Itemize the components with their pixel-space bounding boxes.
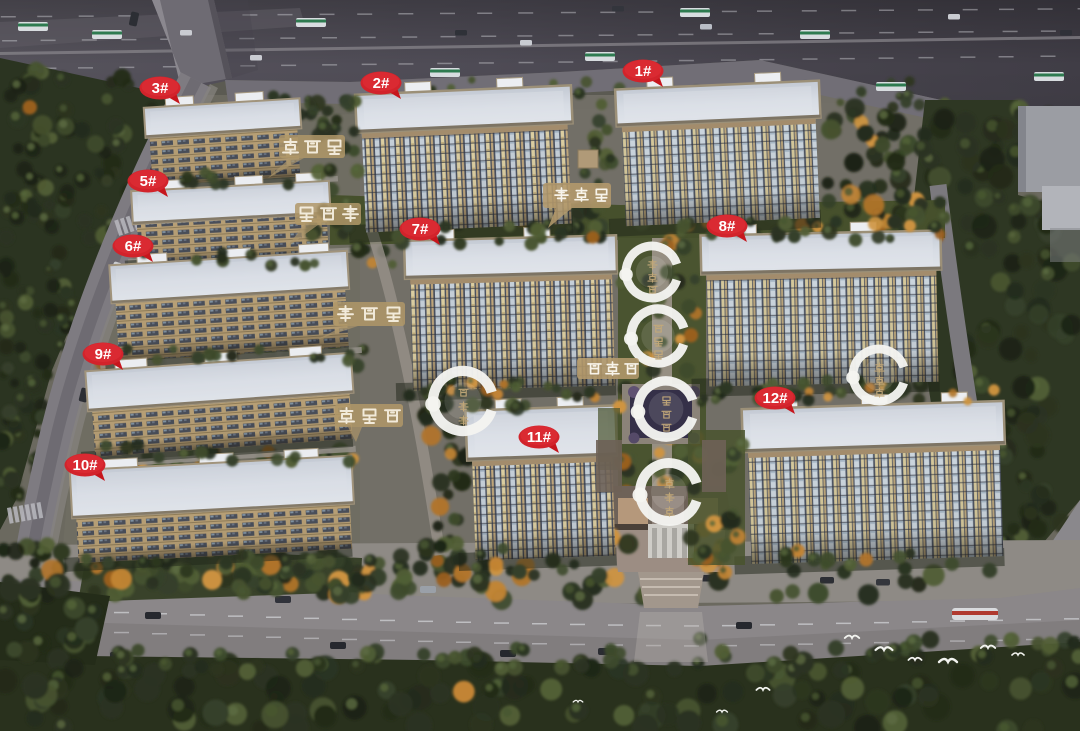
svg-text:8#: 8# xyxy=(719,218,736,235)
svg-text:7#: 7# xyxy=(412,221,429,238)
svg-text:10#: 10# xyxy=(72,457,98,474)
svg-text:12#: 12# xyxy=(762,390,788,407)
svg-text:1#: 1# xyxy=(635,63,652,80)
svg-text:5#: 5# xyxy=(140,173,157,190)
svg-text:6#: 6# xyxy=(125,238,142,255)
svg-text:2#: 2# xyxy=(373,75,390,92)
svg-text:3#: 3# xyxy=(152,80,169,97)
svg-text:11#: 11# xyxy=(527,429,552,446)
svg-text:9#: 9# xyxy=(95,346,112,363)
